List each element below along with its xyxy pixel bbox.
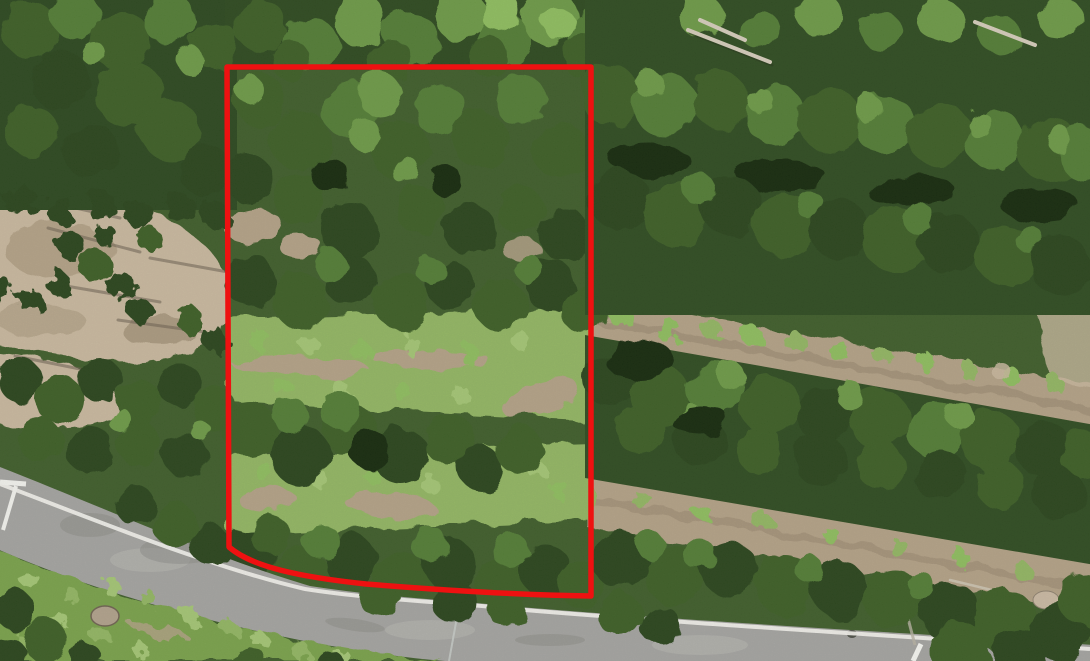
photo-grain-light (0, 0, 1090, 661)
aerial-photo (0, 0, 1090, 661)
aerial-photo-canvas (0, 0, 1090, 661)
